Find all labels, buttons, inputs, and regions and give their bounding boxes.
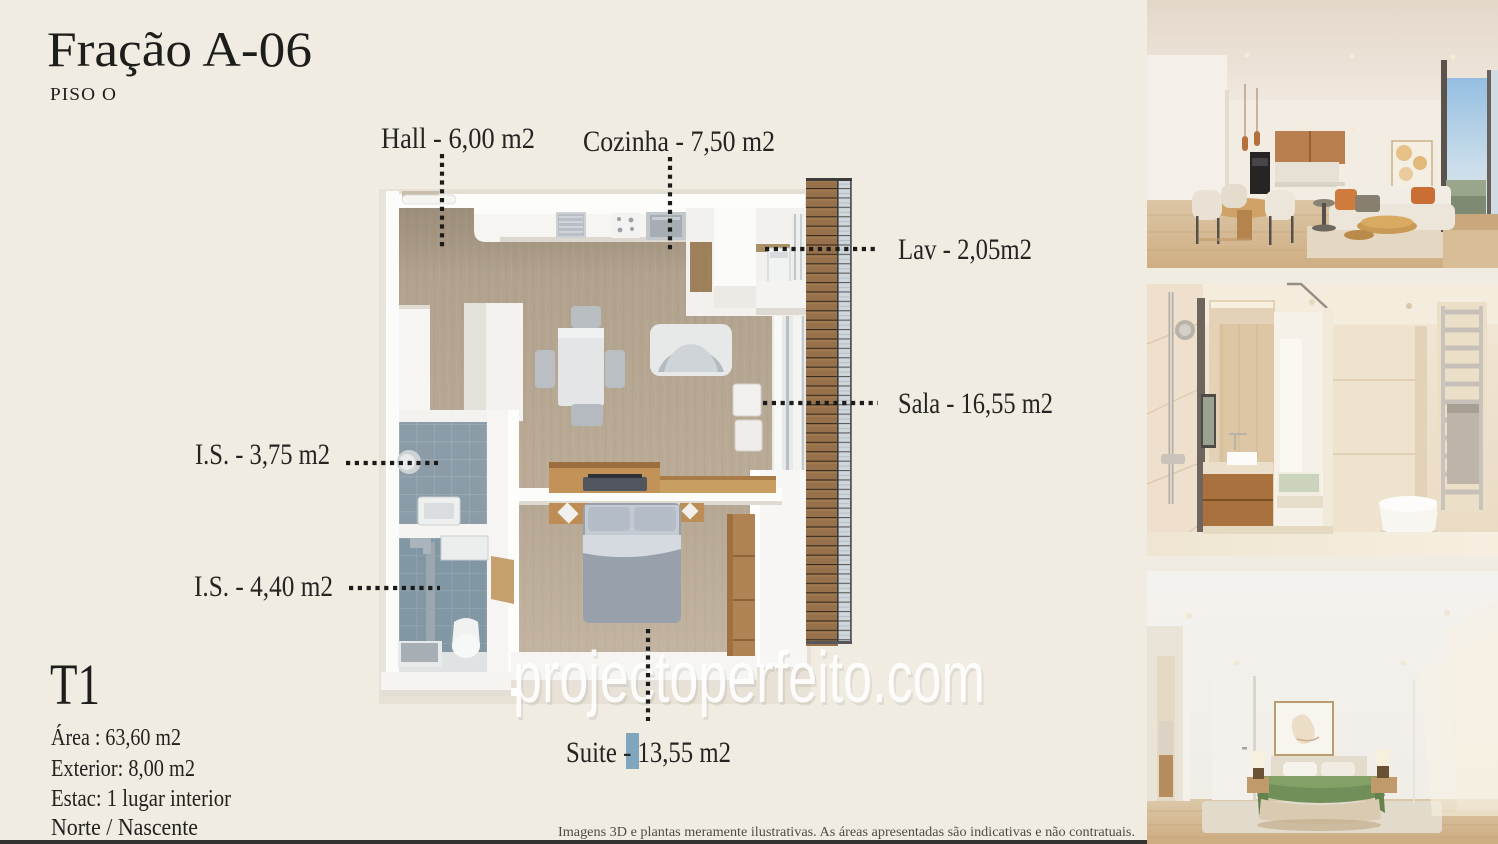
svg-text:Hall - 6,00 m2: Hall - 6,00 m2: [381, 122, 535, 155]
svg-text:Fração A-06: Fração A-06: [47, 21, 312, 77]
svg-text:Imagens 3D e plantas meramente: Imagens 3D e plantas meramente ilustrati…: [558, 824, 1135, 839]
svg-text:Norte / Nascente: Norte / Nascente: [51, 815, 198, 841]
svg-text:Lav - 2,05m2: Lav - 2,05m2: [898, 233, 1032, 266]
svg-text:I.S. - 4,40 m2: I.S. - 4,40 m2: [194, 570, 333, 603]
svg-text:Sala - 16,55 m2: Sala - 16,55 m2: [898, 387, 1053, 420]
svg-text:PISO O: PISO O: [50, 84, 117, 104]
svg-text:Área : 63,60 m2: Área : 63,60 m2: [51, 725, 181, 751]
svg-text:T1: T1: [50, 652, 100, 717]
svg-text:Cozinha - 7,50 m2: Cozinha - 7,50 m2: [583, 125, 775, 158]
svg-text:Exterior: 8,00 m2: Exterior: 8,00 m2: [51, 756, 195, 782]
svg-text:Suite - 13,55 m2: Suite - 13,55 m2: [566, 736, 731, 769]
svg-text:Estac: 1 lugar interior: Estac: 1 lugar interior: [51, 786, 231, 812]
svg-text:I.S. - 3,75 m2: I.S. - 3,75 m2: [195, 438, 330, 471]
svg-text:projectoperfeito.com: projectoperfeito.com: [513, 638, 985, 718]
